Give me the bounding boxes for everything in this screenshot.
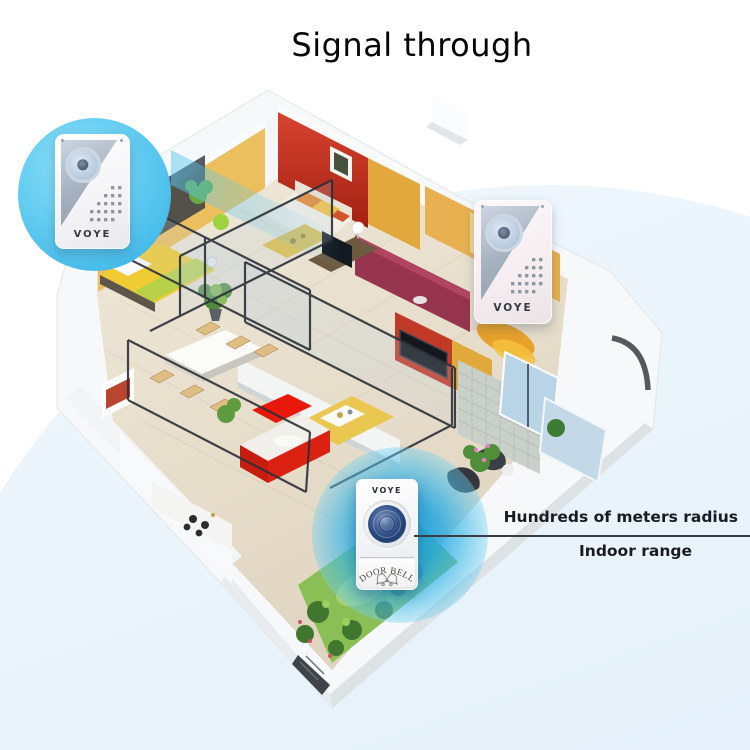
speaker-lens-icon — [65, 147, 101, 183]
receiver-brand-label: VOYE — [474, 302, 552, 314]
screw-icon — [541, 205, 544, 208]
page-title: Signal through — [291, 26, 532, 64]
speaker-grille-icon — [86, 185, 126, 227]
speaker-lens-icon — [485, 214, 523, 252]
screw-icon — [120, 139, 123, 142]
screw-icon — [61, 139, 64, 142]
range-divider-line — [414, 535, 750, 537]
doorbell-transmitter: VOYE DOOR BELL — [356, 479, 418, 590]
product-illustration: VOYE VOYE VOYE — [0, 0, 750, 750]
transmitter-brand-label: VOYE — [356, 486, 418, 495]
doorbell-receiver-2: VOYE — [474, 200, 552, 324]
floorplan-illustration — [0, 0, 750, 750]
bell-icon — [370, 572, 404, 589]
outdoor-range-label: Hundreds of meters radius — [504, 508, 738, 526]
screw-icon — [483, 284, 486, 287]
doorbell-receiver-1: VOYE — [55, 134, 130, 249]
screw-icon — [63, 210, 66, 213]
receiver-brand-label: VOYE — [55, 229, 130, 240]
bell-button-icon — [363, 500, 411, 548]
lens-center — [498, 227, 510, 239]
screw-icon — [481, 205, 484, 208]
indoor-range-label: Indoor range — [579, 542, 692, 560]
bell-button-face — [368, 505, 406, 543]
lens-center — [77, 159, 88, 170]
speaker-grille-icon — [507, 257, 547, 299]
